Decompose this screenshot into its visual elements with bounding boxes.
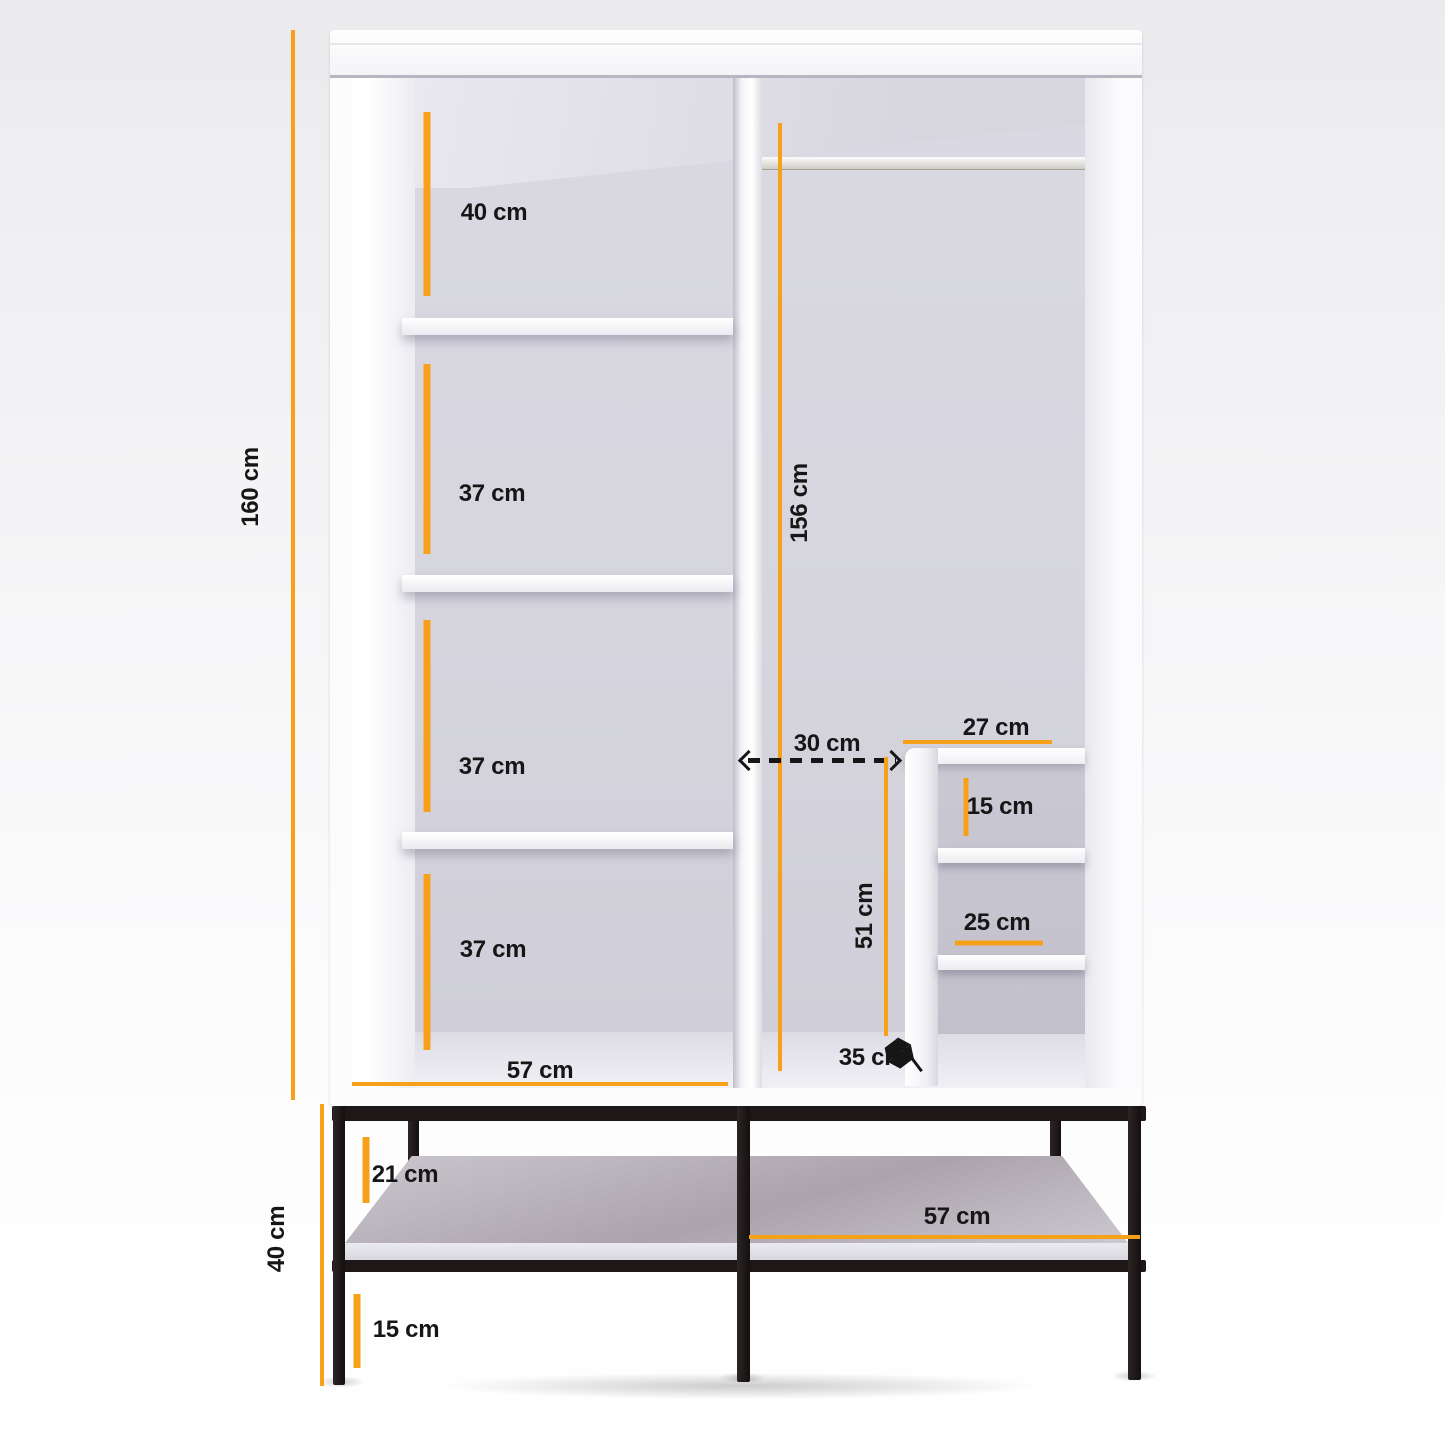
cabinet-right-wall: [1085, 78, 1142, 1088]
left-shelf-2: [402, 575, 733, 592]
dim-dashed-clearance: [748, 758, 896, 763]
dim-line-cubby-height: [884, 757, 888, 1036]
dim-arrow-base-bottom: [344, 1276, 370, 1386]
dim-label-cubby-height: 51 cm: [851, 883, 879, 950]
dim-label-hanging-height: 156 cm: [786, 463, 814, 543]
cabinet-top-seam: [330, 43, 1142, 45]
dim-label-cubby-top: 15 cm: [967, 793, 1034, 821]
center-divider-panel: [733, 78, 762, 1088]
hanging-rod: [762, 157, 1085, 170]
base-leg-right: [1128, 1106, 1141, 1380]
cubby-shelf-2: [938, 955, 1085, 970]
dim-arrow-compartment3: [414, 602, 440, 830]
dim-label-compartment3: 37 cm: [459, 753, 526, 781]
dim-label-compartment4: 37 cm: [460, 936, 527, 964]
dim-label-base-shelf-width: 57 cm: [924, 1203, 991, 1231]
left-shelf-3: [402, 832, 733, 849]
cubby-side-panel: [905, 748, 938, 1086]
dim-label-top-compartment: 40 cm: [461, 199, 528, 227]
dim-bracket-base-shelf-width: [749, 1235, 1140, 1239]
left-shelf-1: [402, 318, 733, 335]
dim-label-base-height: 40 cm: [263, 1206, 291, 1273]
dim-label-overall-height: 160 cm: [237, 447, 265, 527]
dim-arrow-top-compartment: [414, 94, 440, 314]
dim-label-base-bottom: 15 cm: [373, 1316, 440, 1344]
dim-arrow-compartment4: [414, 856, 440, 1068]
dim-label-cubby-depth: 35 cm: [839, 1044, 906, 1072]
diagram-canvas: 160 cm 40 cm 37 cm 37 cm 37 cm 57 cm 156…: [0, 0, 1445, 1445]
dim-bracket-overall-height: [291, 30, 295, 1100]
dim-label-cubby-shelf-width: 25 cm: [964, 909, 1031, 937]
dim-line-hanging-height: [778, 123, 782, 1071]
cabinet-top-panel: [330, 30, 1142, 78]
dim-arrow-compartment2: [414, 346, 440, 572]
base-leg-middle: [737, 1106, 750, 1382]
dim-label-cubby-width: 27 cm: [963, 714, 1030, 742]
dim-label-clearance: 30 cm: [794, 730, 861, 758]
dim-bracket-base-height: [320, 1104, 324, 1386]
dim-label-base-clearance: 21 cm: [372, 1161, 439, 1189]
dim-label-left-width: 57 cm: [507, 1057, 574, 1085]
dim-label-compartment2: 37 cm: [459, 480, 526, 508]
cubby-shelf-1: [938, 848, 1085, 863]
